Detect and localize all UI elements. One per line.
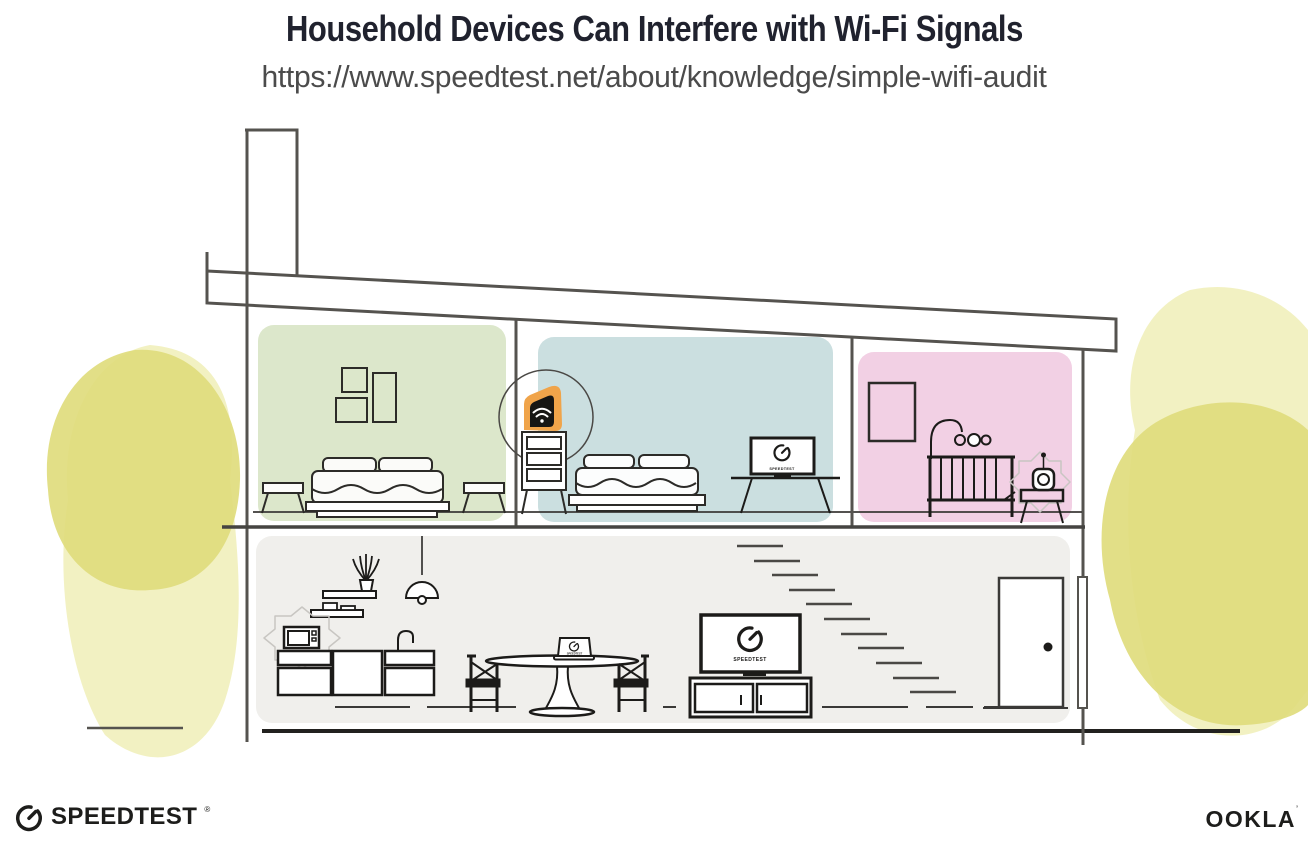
bedroom-monitor: SPEEDTEST [751,438,814,477]
ookla-wordmark: OOKLA [1205,806,1296,833]
tv-console [690,678,811,717]
ookla-logo: OOKLA ’ [1205,806,1298,833]
house-cross-section-illustration: SPEEDTEST [0,0,1308,861]
downspout [1078,577,1087,708]
tree-left-dark-wash [47,350,240,591]
monitor-screen-label: SPEEDTEST [769,467,795,471]
tree-right [1102,287,1308,736]
tree-left [47,345,240,757]
living-room: SPEEDTEST [690,615,811,717]
speedtest-trademark: ® [204,805,210,814]
television: SPEEDTEST [701,615,800,676]
door-knob [1044,643,1053,652]
ground-lines [87,728,1240,731]
chimney [245,130,297,276]
dining-laptop: SPEEDTEST [554,638,594,660]
speedtest-wordmark: SPEEDTEST [51,803,197,831]
speedtest-gauge-icon [14,802,44,832]
ookla-trademark: ’ [1296,804,1298,814]
laptop-screen-label: SPEEDTEST [567,652,583,656]
kitchen-cabinets [278,651,434,695]
tree-right-dark-wash [1102,402,1308,725]
microwave [284,627,319,648]
tv-screen-label: SPEEDTEST [733,657,766,663]
speedtest-logo: SPEEDTEST ® [14,802,210,832]
infographic-page: Household Devices Can Interfere with Wi-… [0,0,1308,861]
